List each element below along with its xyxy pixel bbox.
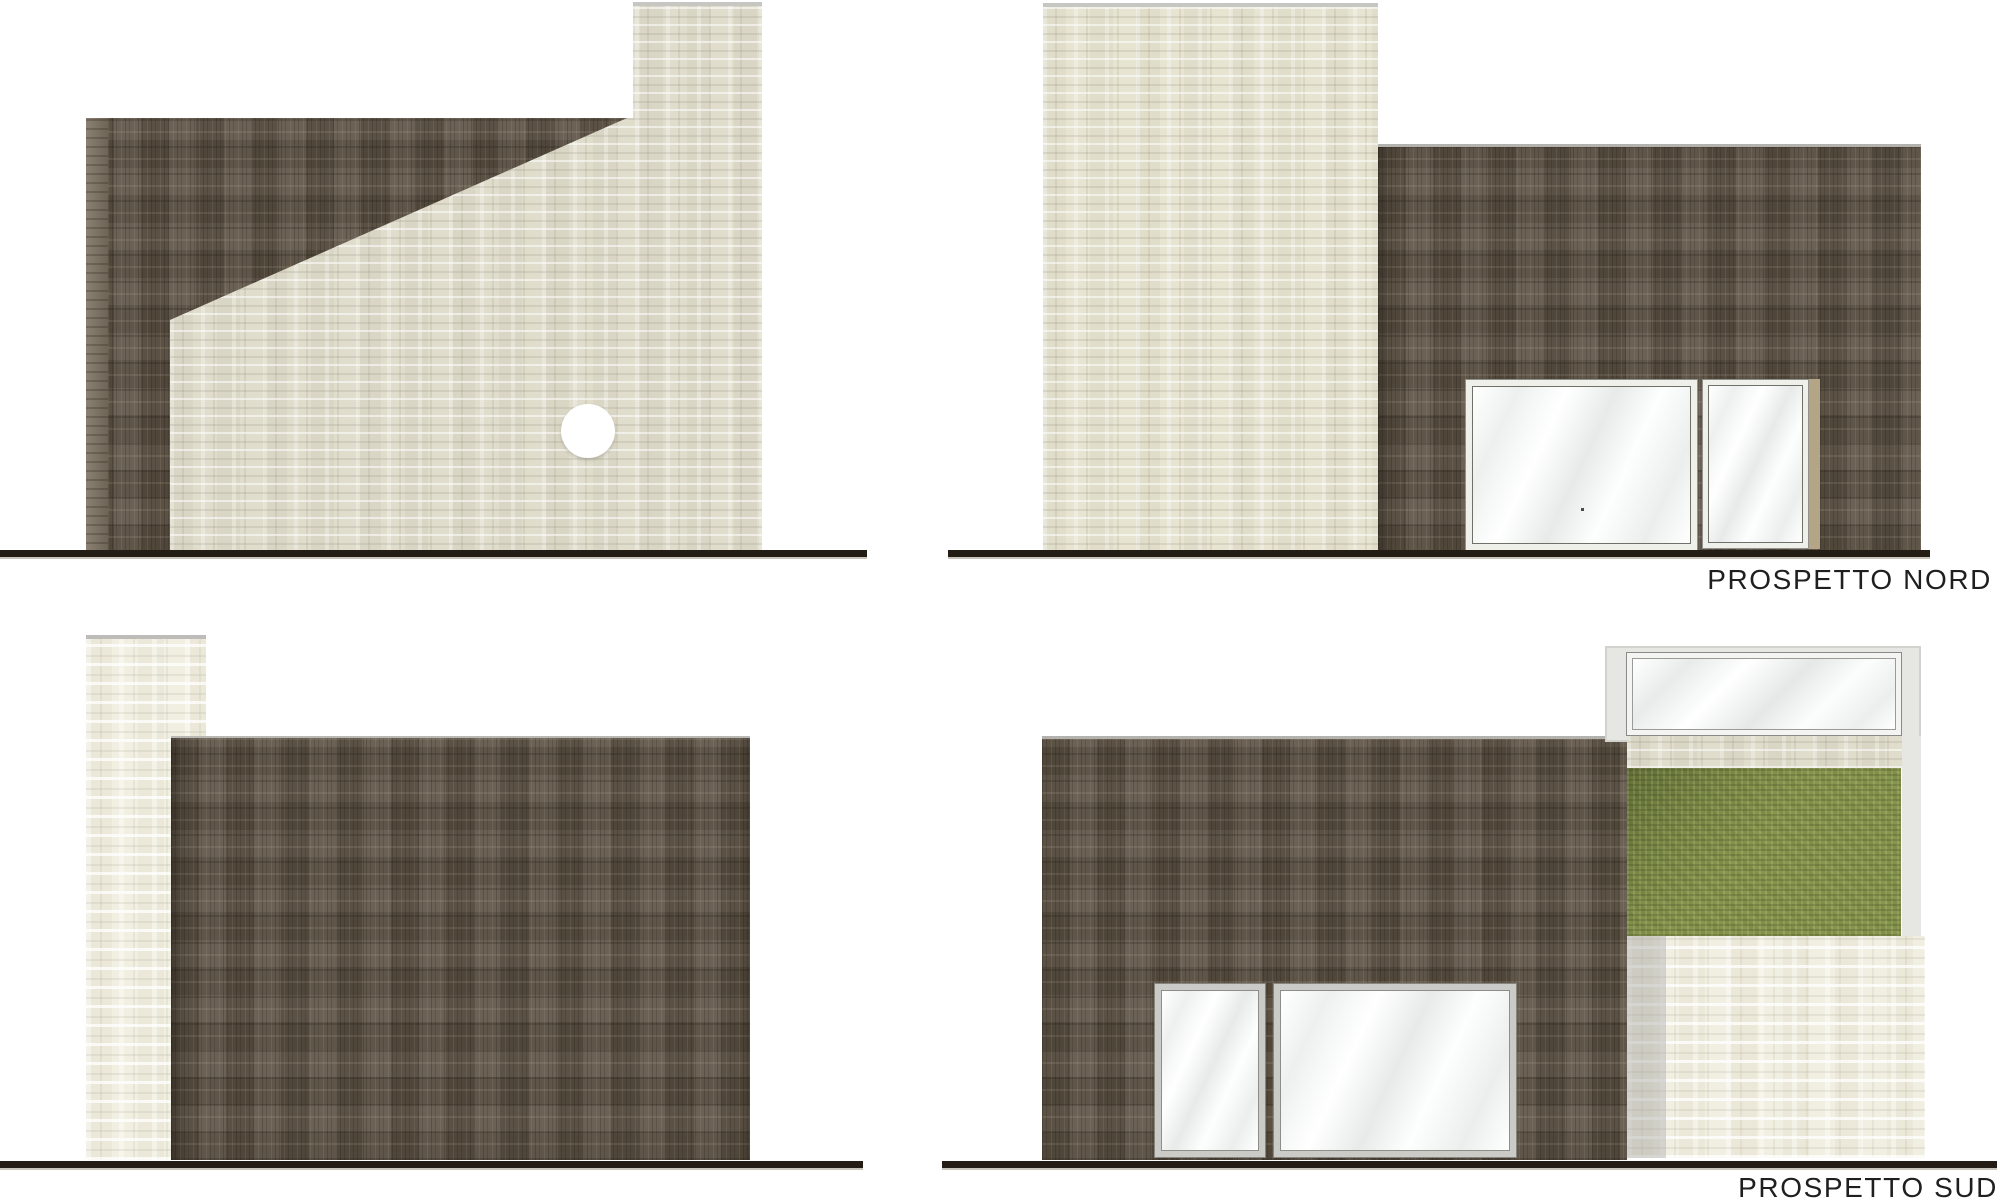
circular-vent — [561, 404, 615, 458]
sud-cream-strip — [1627, 736, 1902, 768]
elevation-sud: PROSPETTO SUD — [900, 600, 2000, 1200]
elevation-sheet: PROSPETTO EST PROSPETTO NORD — [0, 0, 2000, 1200]
nord-window-large-glass — [1472, 386, 1691, 544]
sud-window-left — [1154, 983, 1266, 1158]
elevation-ovest: PROSPETTO OVEST — [0, 600, 900, 1200]
sud-clerestory-window — [1626, 652, 1902, 736]
sud-plaster-wall — [1627, 936, 1925, 1158]
elevation-nord: PROSPETTO NORD — [900, 0, 2000, 600]
sud-wall-cap — [1042, 736, 1627, 739]
ovest-wall-right-edge — [738, 738, 750, 1160]
est-tower-cap — [633, 2, 762, 6]
sud-window-right-glass — [1280, 990, 1510, 1151]
nord-wall-shadow-strip — [1378, 147, 1394, 553]
sud-label: PROSPETTO SUD — [1738, 1172, 1998, 1200]
sud-band-right-jamb — [1902, 736, 1921, 940]
ovest-ground-line — [0, 1161, 863, 1168]
nord-window-jamb — [1809, 379, 1820, 549]
nord-tower-cap — [1043, 3, 1378, 7]
sud-clerestory-glass — [1632, 658, 1896, 730]
sud-window-right — [1273, 983, 1517, 1158]
sud-grass-panel — [1627, 768, 1901, 936]
ovest-wall-shadow-strip — [171, 738, 187, 1160]
nord-window-small-glass — [1708, 385, 1803, 543]
sud-ground-line — [942, 1161, 1997, 1168]
nord-wall-cap — [1378, 144, 1921, 147]
est-ground-line — [0, 550, 867, 557]
ovest-wood-wall — [171, 738, 750, 1160]
nord-window-large — [1465, 379, 1698, 551]
sud-window-left-glass — [1161, 990, 1259, 1151]
nord-tower — [1043, 3, 1378, 553]
nord-label: PROSPETTO NORD — [1707, 564, 1992, 596]
sud-plaster-shadow-strip — [1627, 936, 1666, 1158]
nord-window-handle-dot — [1581, 508, 1584, 511]
nord-window-small — [1702, 379, 1809, 549]
ovest-tower-cap — [86, 635, 206, 639]
est-wall-side-return — [86, 118, 108, 553]
nord-ground-line — [948, 550, 1930, 557]
elevation-est: PROSPETTO EST — [0, 0, 900, 600]
ovest-wall-cap — [171, 736, 750, 738]
